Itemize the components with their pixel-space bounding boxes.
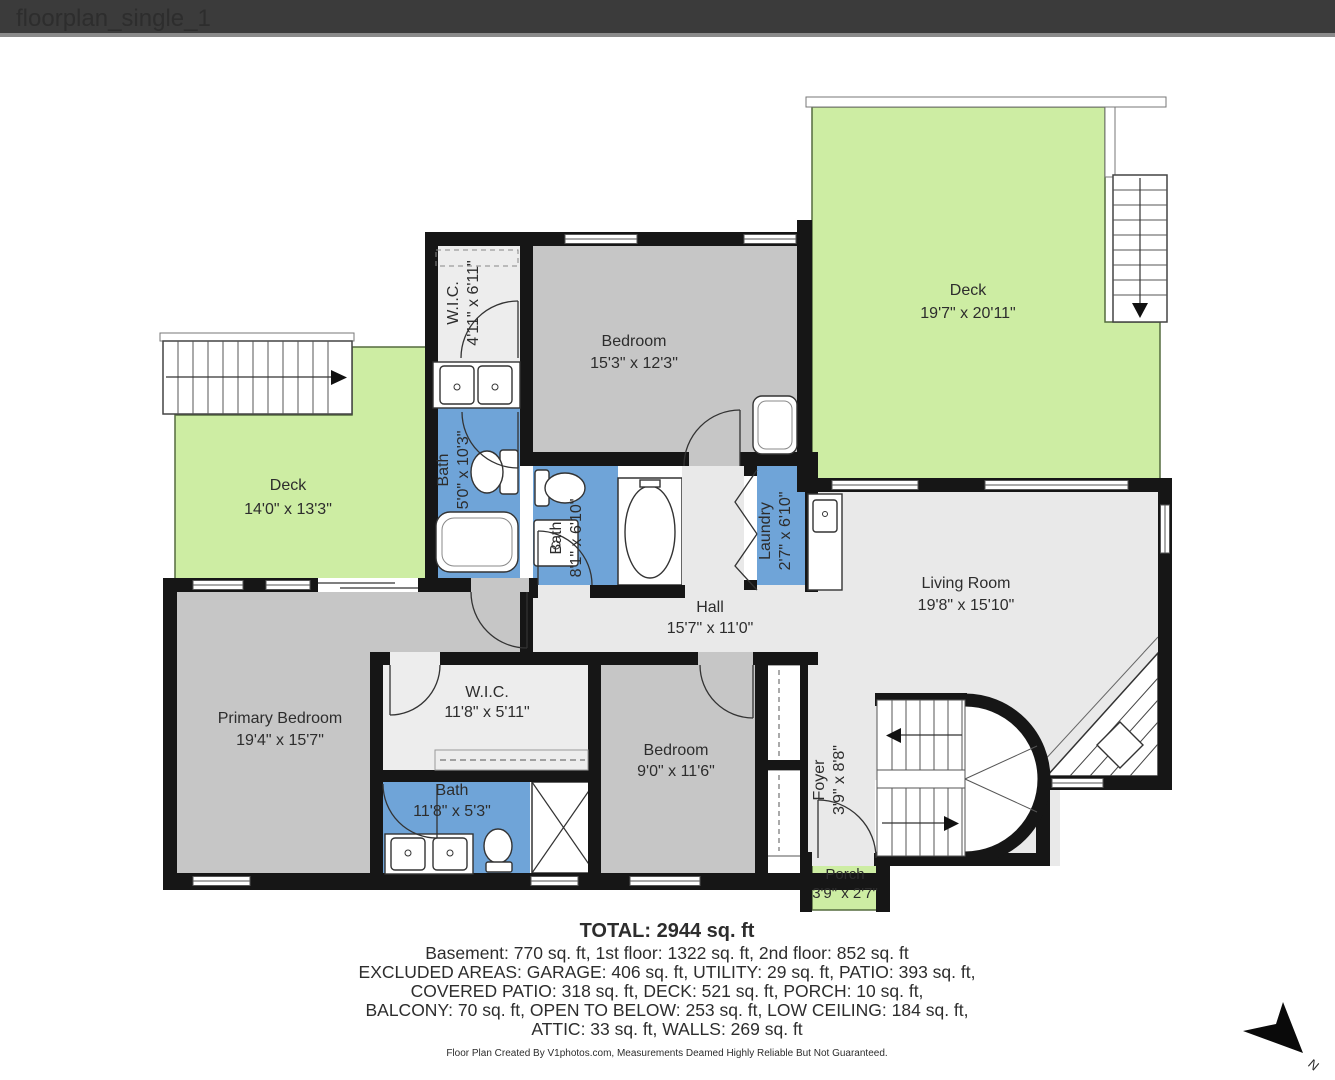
window — [266, 581, 310, 590]
room-name: Foyer — [811, 759, 828, 801]
north-label: N — [1305, 1056, 1322, 1074]
label-bedroom-lower-dims: 9'0" x 11'6" — [637, 763, 715, 780]
room-dims: 3'9" x 8'8" — [831, 745, 848, 815]
vanity-upper — [433, 362, 520, 408]
room-name: W.I.C. — [445, 281, 462, 325]
window — [832, 481, 918, 490]
label-deck-left: Deck — [270, 477, 307, 494]
tub-nook-upper — [753, 396, 797, 454]
summary-line3: COVERED PATIO: 318 sq. ft, DECK: 521 sq.… — [411, 981, 924, 1001]
vanity-bath3 — [385, 834, 473, 874]
summary-line2: EXCLUDED AREAS: GARAGE: 406 sq. ft, UTIL… — [359, 962, 976, 982]
room-dims: 8'1" x 6'10" — [568, 499, 585, 578]
deck-railing-top — [806, 97, 1166, 107]
label-porch: Porch — [825, 866, 864, 883]
toilet-bath3 — [484, 829, 512, 872]
label-deck-upper: Deck — [950, 282, 987, 299]
area-summary: TOTAL: 2944 sq. ft Basement: 770 sq. ft,… — [359, 920, 976, 1059]
room-dims: 4'11" x 6'11" — [465, 260, 482, 345]
window-title: floorplan_single_1 — [16, 5, 211, 32]
stairs-deck-upper — [1113, 175, 1167, 322]
window — [531, 877, 578, 886]
label-primary-bedroom-dims: 19'4" x 15'7" — [236, 732, 324, 749]
counter-living — [808, 494, 842, 590]
label-primary-bedroom: Primary Bedroom — [218, 710, 342, 727]
toilet-bath1 — [471, 450, 518, 494]
window — [630, 877, 700, 886]
room-dims: 2'7" x 6'10" — [777, 492, 794, 571]
shower-stall — [532, 782, 595, 873]
summary-total: TOTAL: 2944 sq. ft — [580, 920, 755, 942]
deck-railing-right — [1105, 107, 1115, 177]
bathtub-bath1 — [436, 512, 518, 572]
label-bedroom-lower: Bedroom — [644, 742, 709, 759]
label-bath3: Bath — [436, 782, 469, 799]
title-bar: floorplan_single_1 — [0, 0, 1335, 37]
sliding-door — [318, 578, 418, 592]
summary-line4: BALCONY: 70 sq. ft, OPEN TO BELOW: 253 s… — [365, 1000, 968, 1020]
window — [565, 235, 637, 244]
stairs-deck-left — [160, 333, 354, 414]
label-wic-lower-dims: 11'8" x 5'11" — [444, 704, 529, 721]
window — [744, 235, 796, 244]
summary-line5: ATTIC: 33 sq. ft, WALLS: 269 sq. ft — [531, 1019, 802, 1039]
hall-corridor — [682, 466, 744, 585]
room-dims: 5'0" x 10'3" — [455, 431, 472, 510]
summary-line1: Basement: 770 sq. ft, 1st floor: 1322 sq… — [425, 943, 909, 963]
window — [193, 581, 243, 590]
floorplan-viewer: floorplan_single_1 — [0, 0, 1335, 1080]
window — [1052, 779, 1103, 788]
north-arrow-icon — [1243, 1002, 1303, 1053]
room-name: Bath — [435, 454, 452, 487]
label-wic-lower: W.I.C. — [465, 684, 509, 701]
label-deck-left-dims: 14'0" x 13'3" — [244, 501, 332, 518]
label-bath3-dims: 11'8" x 5'3" — [413, 803, 491, 820]
window — [1161, 505, 1170, 553]
label-hall-dims: 15'7" x 11'0" — [667, 620, 754, 637]
label-hall: Hall — [696, 599, 724, 616]
north-compass: N — [1243, 1002, 1322, 1074]
room-name: Bath — [548, 522, 565, 555]
room-name: Laundry — [757, 502, 774, 560]
label-deck-upper-dims: 19'7" x 20'11" — [920, 305, 1015, 322]
label-bedroom-upper: Bedroom — [602, 333, 667, 350]
floorplan-canvas: floorplan_single_1 — [0, 0, 1335, 1080]
window — [985, 481, 1128, 490]
label-living-room-dims: 19'8" x 15'10" — [918, 597, 1015, 614]
window — [193, 877, 250, 886]
label-porch-dims: 3'9" x 2'7" — [812, 885, 878, 902]
label-bedroom-upper-dims: 15'3" x 12'3" — [590, 355, 678, 372]
label-living-room: Living Room — [922, 575, 1011, 592]
footer-credit: Floor Plan Created By V1photos.com, Meas… — [446, 1048, 887, 1059]
